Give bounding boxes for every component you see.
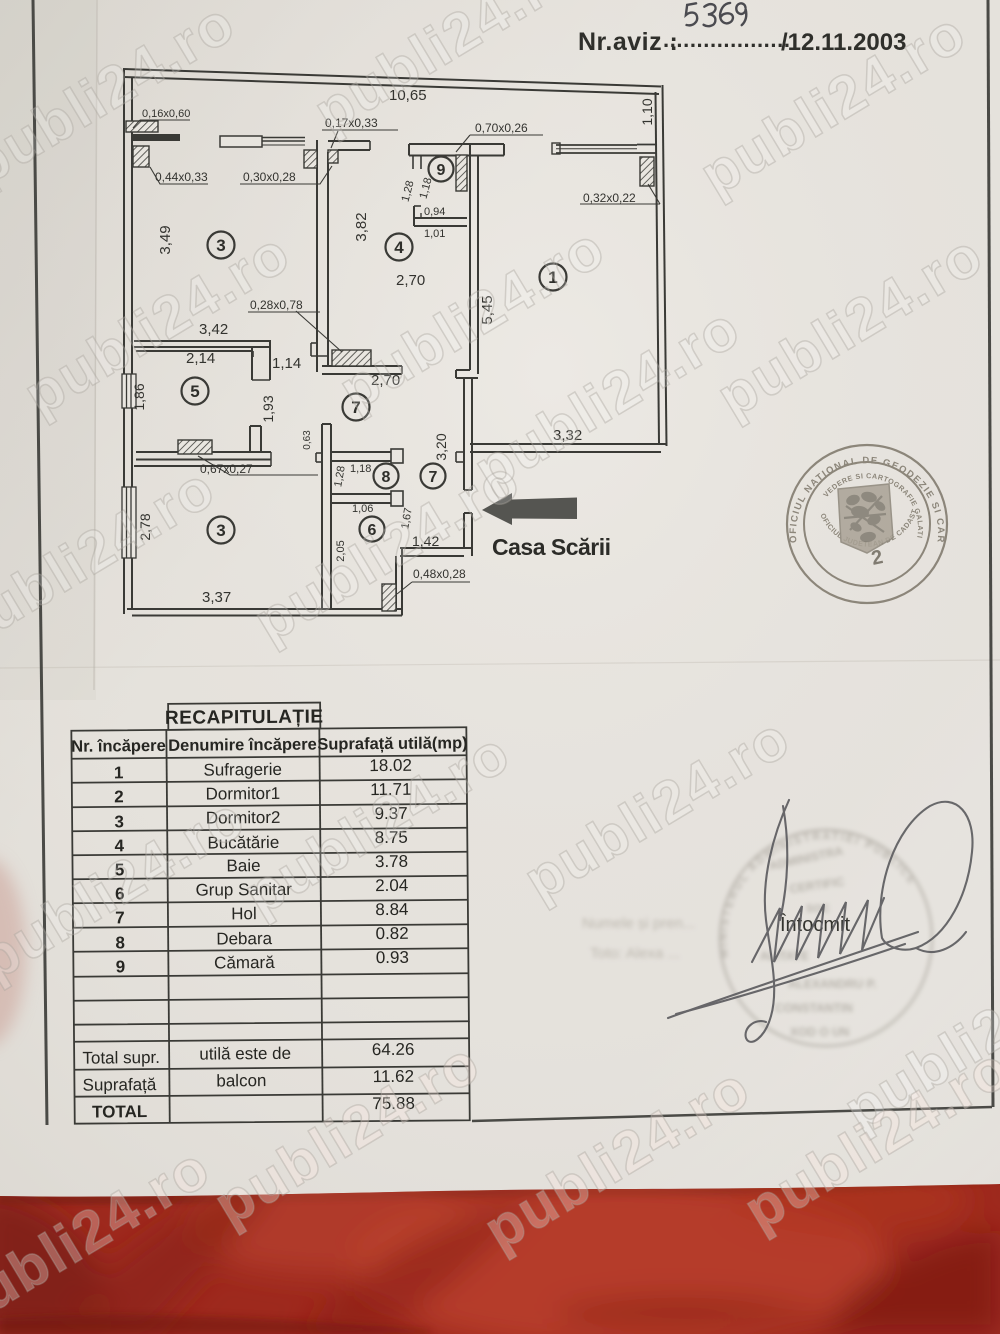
svg-text:TOTAL: TOTAL: [92, 1102, 147, 1121]
svg-text:Numele și pren...: Numele și pren...: [582, 915, 695, 932]
svg-text:balcon: balcon: [216, 1071, 266, 1090]
svg-text:2.04: 2.04: [375, 876, 408, 895]
svg-text:3,37: 3,37: [202, 589, 231, 606]
svg-text:9: 9: [116, 957, 126, 976]
svg-text:...................: ...................: [663, 27, 791, 52]
svg-text:CONSTANTIN: CONSTANTIN: [775, 1001, 853, 1015]
svg-text:2,70: 2,70: [396, 272, 425, 289]
svg-text:RECAPITULAȚIE: RECAPITULAȚIE: [165, 707, 324, 729]
svg-text:8: 8: [382, 469, 391, 486]
svg-text:2: 2: [114, 787, 124, 806]
svg-text:Nr. încăpere: Nr. încăpere: [71, 737, 166, 756]
svg-text:1: 1: [114, 763, 124, 782]
svg-text:0,94: 0,94: [424, 206, 445, 218]
svg-text:1,18: 1,18: [350, 463, 371, 475]
svg-text:Toto: Alexa ...: Toto: Alexa ...: [590, 945, 680, 962]
svg-text:3: 3: [216, 521, 225, 540]
svg-text:8: 8: [115, 933, 125, 952]
svg-text:0,67x0,27: 0,67x0,27: [200, 462, 253, 476]
svg-text:1,14: 1,14: [272, 355, 301, 372]
svg-text:1,06: 1,06: [352, 503, 373, 515]
svg-text:1,01: 1,01: [424, 228, 445, 240]
svg-text:ALEXANDRU P.: ALEXANDRU P.: [788, 977, 876, 991]
svg-text:Suprafață: Suprafață: [82, 1075, 156, 1095]
svg-text:2,14: 2,14: [186, 350, 215, 367]
svg-text:Total supr.: Total supr.: [82, 1048, 160, 1068]
svg-text:0.82: 0.82: [375, 924, 408, 943]
svg-text:0.93: 0.93: [376, 948, 409, 967]
svg-text:9: 9: [437, 162, 446, 179]
svg-text:3,82: 3,82: [353, 212, 370, 241]
svg-text:0,30x0,28: 0,30x0,28: [243, 170, 296, 184]
svg-text:3,20: 3,20: [433, 433, 449, 460]
svg-text:4: 4: [394, 238, 404, 257]
svg-text:Cămară: Cămară: [214, 953, 275, 973]
svg-text:8.84: 8.84: [375, 900, 408, 919]
svg-text:XOD O UN: XOD O UN: [790, 1025, 849, 1039]
svg-text:3,49: 3,49: [157, 225, 174, 254]
svg-text:0,16x0,60: 0,16x0,60: [142, 108, 190, 120]
svg-text:0,63: 0,63: [302, 430, 313, 450]
svg-text:utilă este de: utilă este de: [199, 1044, 291, 1064]
svg-text:1,10: 1,10: [639, 98, 655, 125]
svg-text:0,32x0,22: 0,32x0,22: [583, 191, 636, 205]
svg-text:Debara: Debara: [216, 929, 272, 948]
svg-text:0,70x0,26: 0,70x0,26: [475, 121, 528, 135]
svg-text:0,48x0,28: 0,48x0,28: [413, 567, 466, 581]
svg-text:3: 3: [114, 812, 124, 831]
svg-text:64.26: 64.26: [372, 1040, 415, 1059]
svg-text:5: 5: [190, 382, 199, 401]
svg-text:1,93: 1,93: [260, 395, 276, 422]
svg-text:0,44x0,33: 0,44x0,33: [155, 170, 208, 184]
svg-text:Casa Scării: Casa Scării: [492, 534, 611, 560]
svg-text:Denumire încăpere: Denumire încăpere: [168, 736, 317, 755]
svg-text:Sufragerie: Sufragerie: [203, 760, 282, 780]
svg-text:1,86: 1,86: [131, 383, 147, 410]
